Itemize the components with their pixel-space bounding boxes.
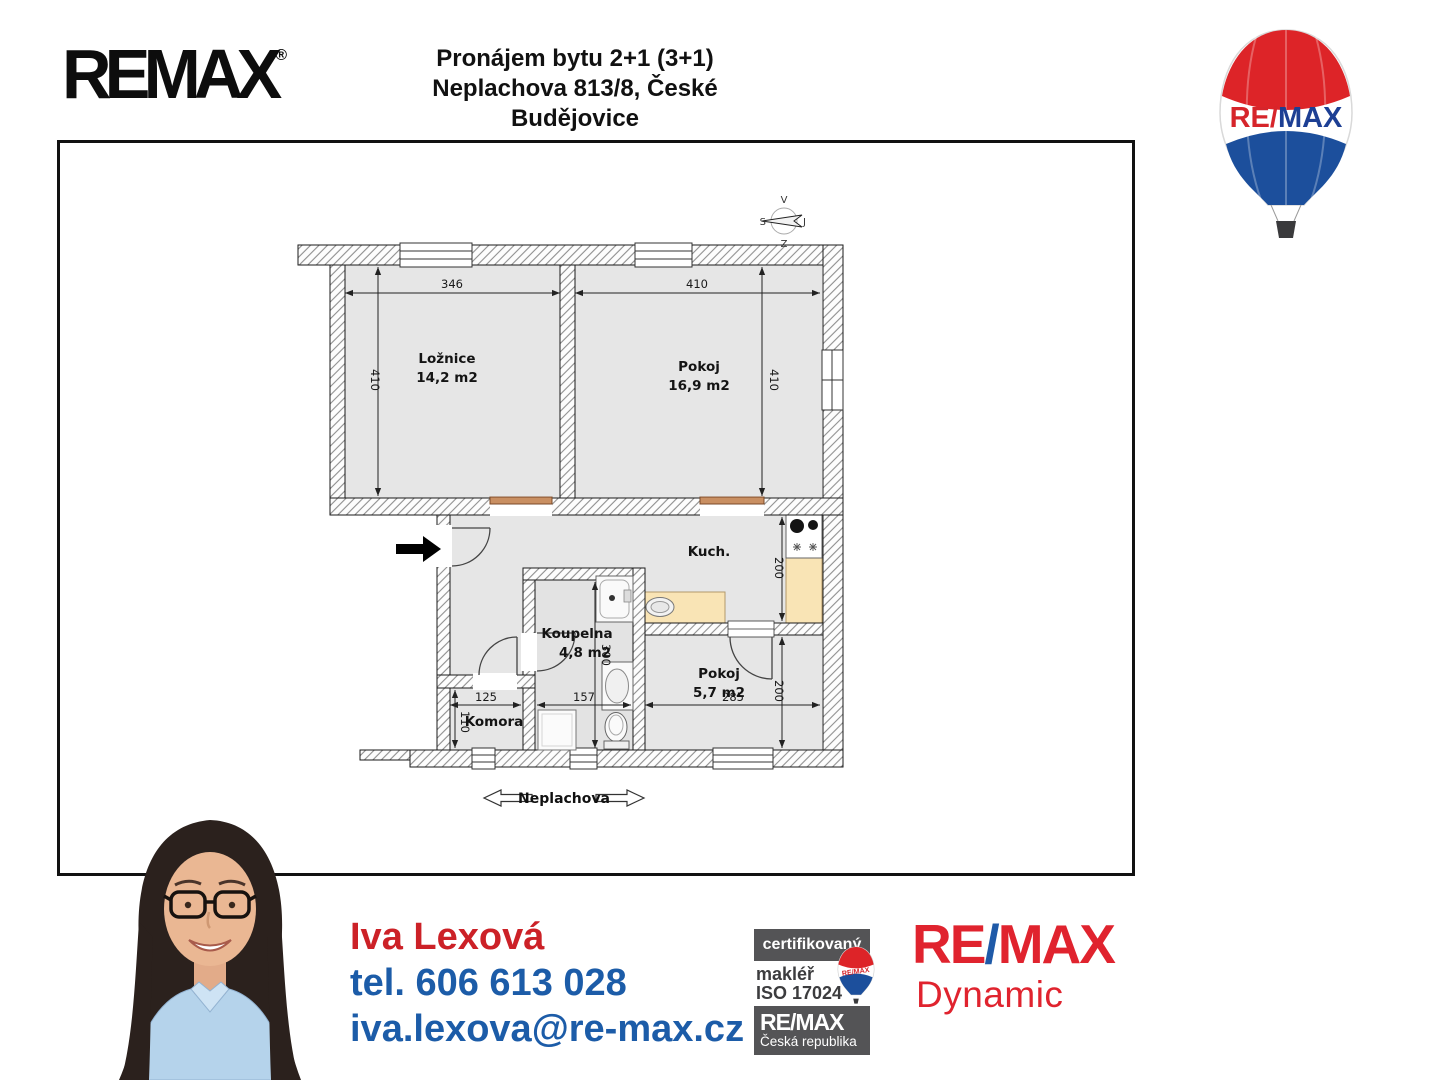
office-logo: RE/MAX Dynamic [912,916,1114,1016]
balloon-word-slash: / [1270,102,1278,134]
compass-j: J [802,217,806,228]
agent-photo [95,812,325,1080]
compass-needle [762,215,802,227]
label-pokoj1: Pokoj [678,359,720,375]
contact-block: Iva Lexová tel. 606 613 028 iva.lexova@r… [350,914,744,1052]
remax-wordmark-text: REMAX [62,35,275,113]
floor-plan: 346 410 410 410 200 200 285 157 300 125 … [280,180,860,820]
label-loznice: Ložnice [418,351,475,367]
dim-komora-width: 125 [475,690,497,704]
remax-balloon-logo: RE/MAX [1205,24,1367,242]
remax-wordmark: REMAX® [62,34,287,114]
balloon-rope-left [1271,205,1278,221]
door-komora-gap [473,673,517,690]
balloon-word-max: MAX [1278,102,1343,134]
listing-title-line1: Pronájem bytu 2+1 (3+1) [380,44,770,74]
dim-koupelna-width: 157 [573,690,595,704]
window-right [822,350,843,410]
door-loznice [490,496,552,516]
wall-bottom-ext [360,750,410,760]
compass-v: V [781,195,788,206]
label-kuchyn: Kuch. [688,544,731,560]
flyer-page: REMAX® Pronájem bytu 2+1 (3+1) Neplachov… [0,0,1440,1080]
balloon-basket [1276,221,1296,238]
cert-balloon-icon: RE/MAX [834,945,878,1005]
cert-balloon-basket [853,999,859,1004]
label-pokoj2-area: 5,7 m2 [693,685,745,701]
dim-loznice-width: 346 [441,277,463,291]
label-pokoj2: Pokoj [698,666,740,682]
balloon-wordmark: RE/MAX [1230,102,1343,134]
stove [786,512,822,558]
compass-rose: V S J Z [760,195,806,250]
dim-loznice-height: 410 [368,369,382,391]
door-entry-gap [435,525,452,567]
kitchen-sink-basin [651,602,669,613]
door-koupelna-gap [521,633,537,671]
office-max: MAX [998,913,1114,975]
office-slash: / [984,913,997,975]
agent-name: Iva Lexová [350,914,744,960]
dim-pokoj1-height: 410 [767,369,781,391]
entry-arrow-icon [396,536,441,562]
label-loznice-area: 14,2 m2 [416,370,477,386]
office-re: RE [912,913,984,975]
cert-brand: RE/MAX [760,1010,864,1034]
bathtub [596,576,633,622]
burner-small [808,520,818,530]
agent-eye-left [185,902,191,908]
listing-title: Pronájem bytu 2+1 (3+1) Neplachova 813/8… [380,44,770,134]
cert-country: Česká republika [760,1034,864,1049]
compass-z: Z [781,239,788,250]
listing-title-line2: Neplachova 813/8, České Budějovice [380,74,770,134]
wall-middle [560,265,575,498]
agent-email: iva.lexova@re-max.cz [350,1006,744,1052]
street-name: Neplachova [518,791,610,807]
burner-large [790,519,804,533]
wall-top [298,245,843,265]
dim-kuchyn-height: 200 [772,557,786,579]
door-pokoj1 [700,496,764,516]
wall-bath-right [633,568,645,750]
agent-phone: tel. 606 613 028 [350,960,744,1006]
label-pokoj1-area: 16,9 m2 [668,378,729,394]
window-loznice [400,243,472,267]
agent-hair-left [121,922,153,1080]
label-komora: Komora [465,714,524,730]
agent-hair-right [267,922,299,1080]
washer [538,710,576,750]
dim-pokoj2-height: 200 [772,680,786,702]
wall-left [330,265,345,498]
cert-balloon-red [838,947,873,968]
door-pokoj2-gap [728,621,774,637]
cert-bottom: RE/MAX Česká republika [754,1006,870,1055]
compass-s: S [760,217,766,228]
balloon-rope-right [1294,205,1301,221]
wall-below-bedrooms [330,498,843,515]
label-koupelna-area: 4,8 m2 [559,645,611,661]
office-name: Dynamic [916,974,1114,1016]
office-wordmark: RE/MAX [912,916,1114,972]
street-row: Neplachova [484,790,644,807]
agent-eye-right [229,902,235,908]
cert-middle: makléř ISO 17024 RE/MAX [754,961,870,1006]
registered-mark: ® [275,47,287,64]
window-pokoj1 [635,243,692,267]
balloon-word-re: RE [1230,102,1270,134]
certification-badge: certifikovaný makléř ISO 17024 RE/MAX RE… [754,929,870,1055]
label-koupelna: Koupelna [541,626,612,642]
washbasin [602,662,633,710]
dim-pokoj1-width: 410 [686,277,708,291]
